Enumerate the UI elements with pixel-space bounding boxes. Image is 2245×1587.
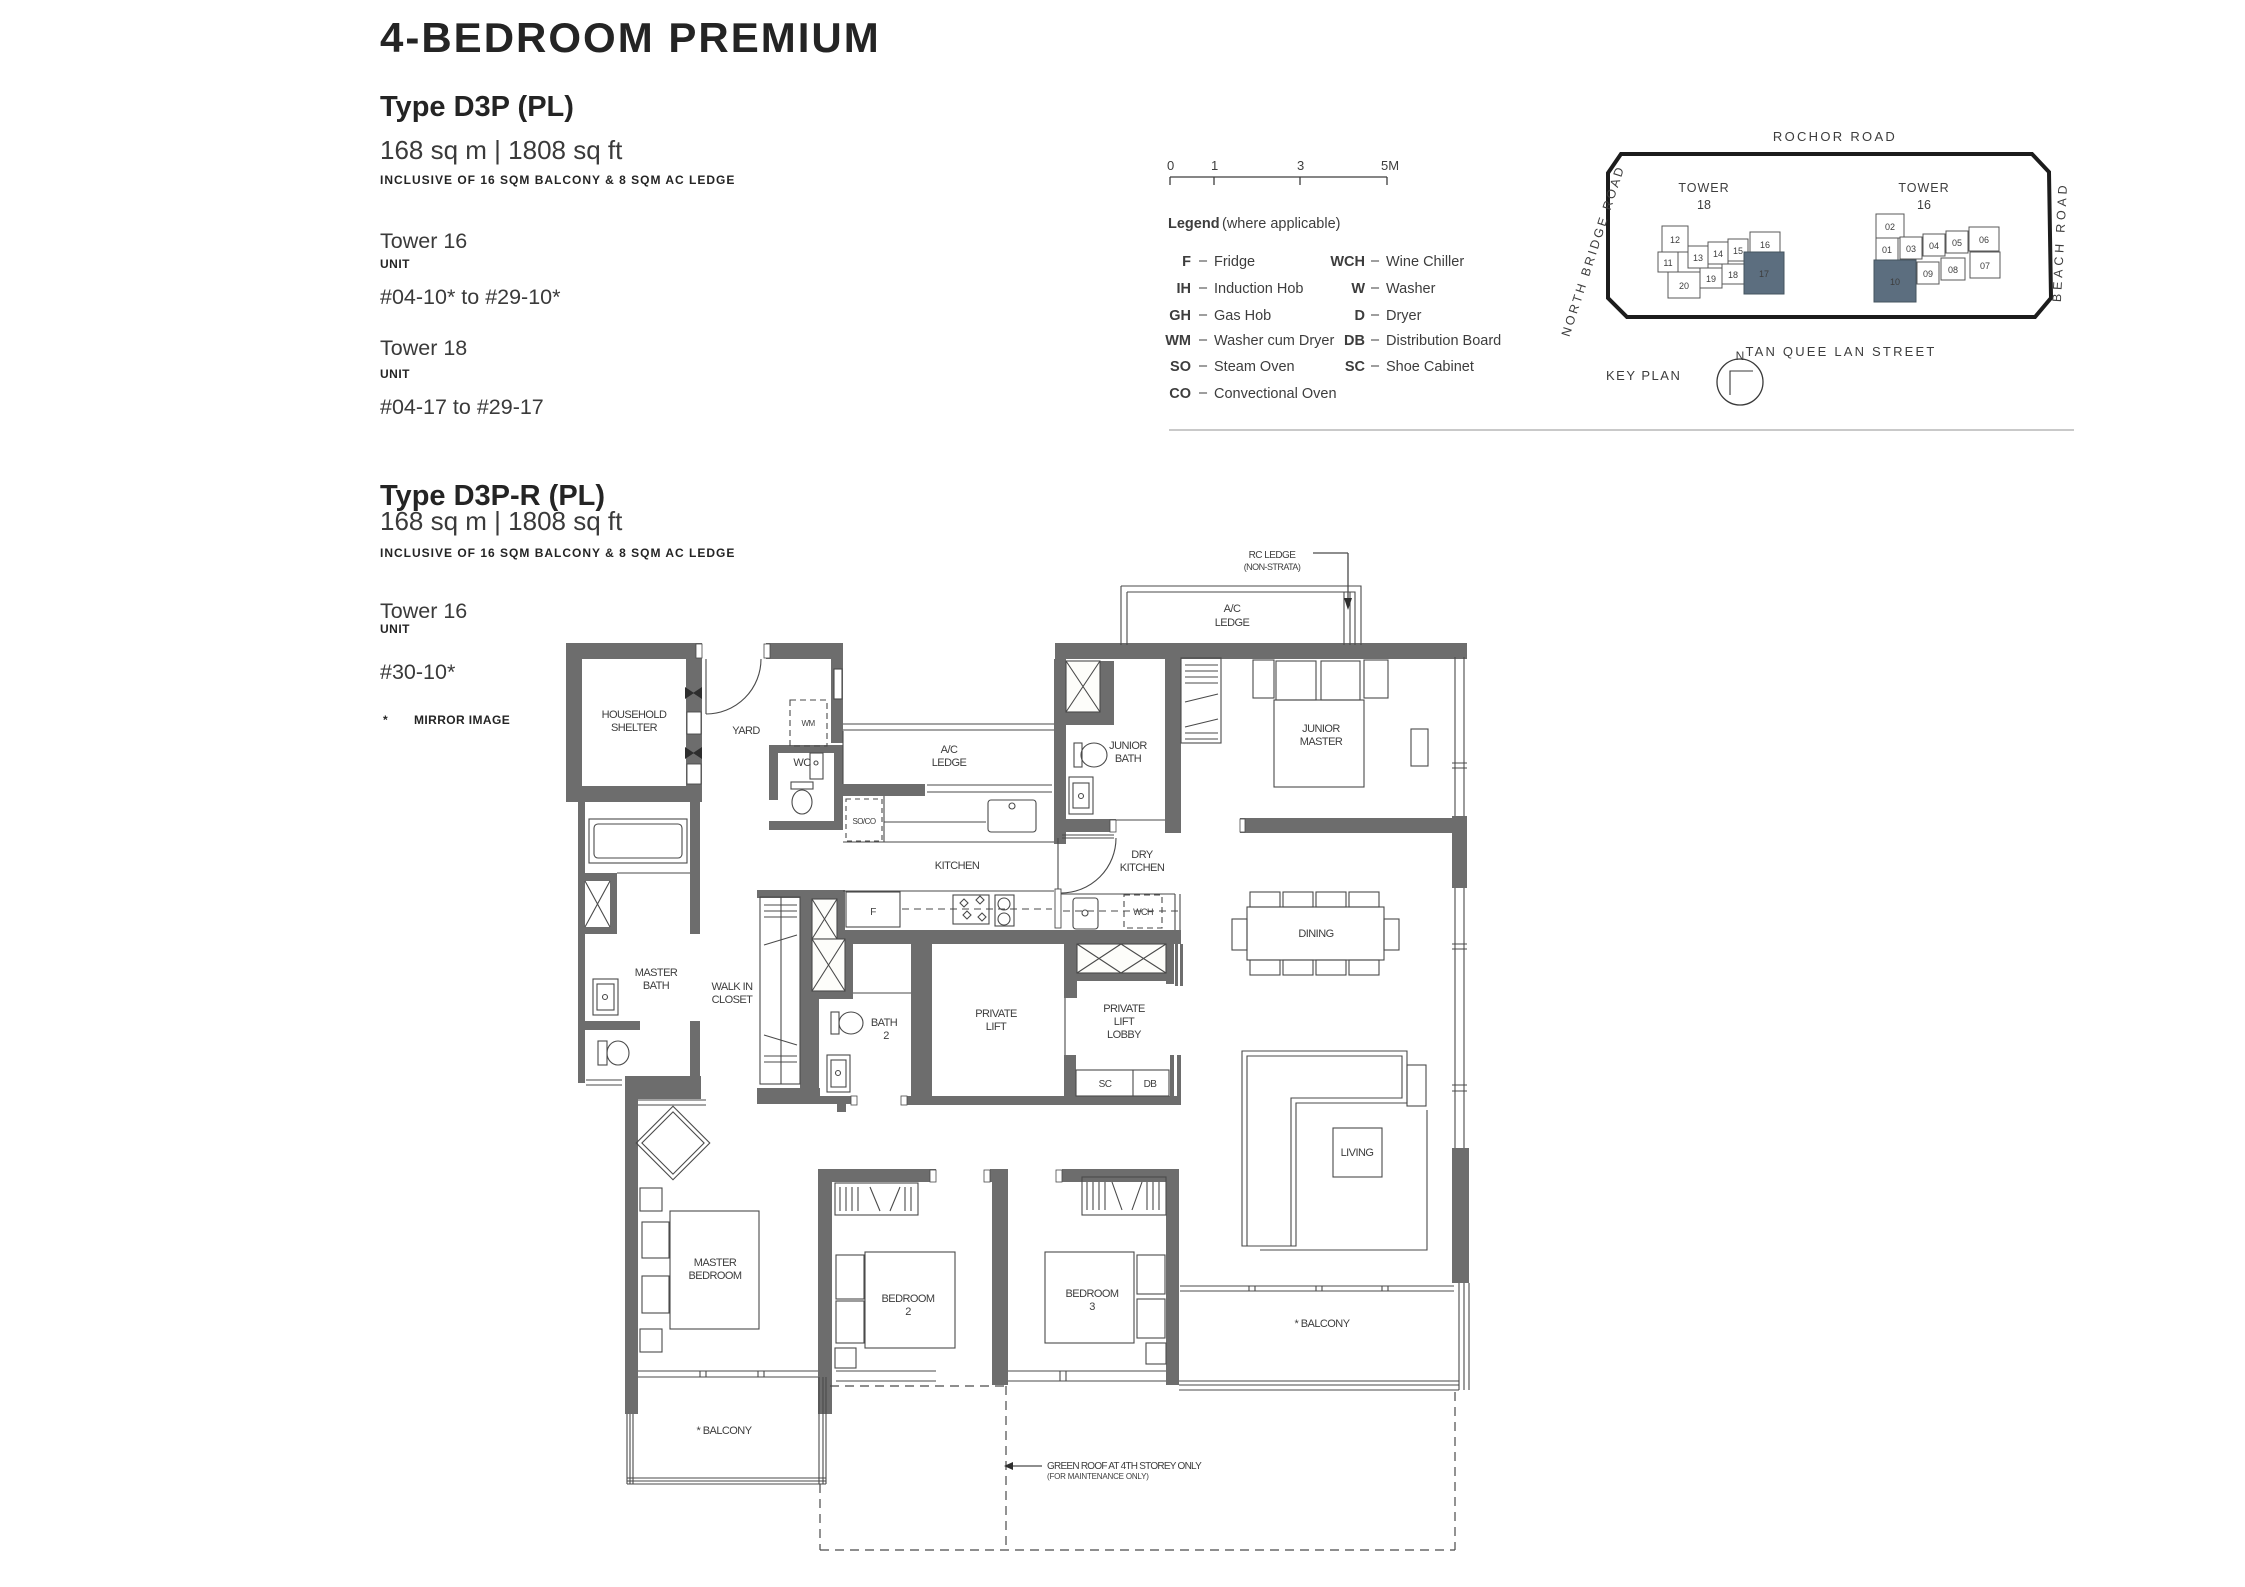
svg-text:04: 04: [1929, 241, 1939, 251]
svg-text:TAN QUEE LAN STREET: TAN QUEE LAN STREET: [1745, 344, 1936, 359]
svg-text:MASTER: MASTER: [694, 1257, 737, 1269]
svg-text:18: 18: [1697, 198, 1711, 212]
svg-text:BEDROOM: BEDROOM: [1066, 1288, 1119, 1300]
svg-text:PRIVATE: PRIVATE: [1103, 1003, 1145, 1015]
svg-text:Steam Oven: Steam Oven: [1214, 359, 1295, 375]
svg-text:DB: DB: [1144, 1079, 1158, 1090]
svg-text:BATH: BATH: [643, 980, 670, 992]
svg-text:BEDROOM: BEDROOM: [689, 1270, 742, 1282]
svg-text:168 sq m | 1808 sq ft: 168 sq m | 1808 sq ft: [380, 135, 623, 165]
svg-text:(FOR MAINTENANCE ONLY): (FOR MAINTENANCE ONLY): [1047, 1472, 1149, 1481]
svg-text:UNIT: UNIT: [380, 367, 410, 381]
svg-text:INCLUSIVE OF 16 SQM BALCONY &: INCLUSIVE OF 16 SQM BALCONY & 8 SQM AC L…: [380, 173, 735, 187]
svg-text:#04-17 to #29-17: #04-17 to #29-17: [380, 395, 544, 419]
svg-text:PRIVATE: PRIVATE: [975, 1008, 1017, 1020]
svg-text:–: –: [1371, 253, 1380, 269]
svg-text:D: D: [1355, 308, 1365, 324]
svg-text:WCH: WCH: [1133, 907, 1153, 917]
svg-text:Washer: Washer: [1386, 281, 1436, 297]
svg-text:–: –: [1199, 253, 1208, 269]
svg-text:1: 1: [1211, 158, 1218, 173]
svg-text:WC: WC: [793, 757, 811, 769]
svg-text:DINING: DINING: [1298, 928, 1333, 940]
svg-text:17: 17: [1759, 269, 1769, 279]
svg-text:(where applicable): (where applicable): [1222, 216, 1340, 232]
svg-text:JUNIOR: JUNIOR: [1302, 723, 1340, 735]
svg-text:BATH: BATH: [1115, 753, 1142, 765]
svg-text:KITCHEN: KITCHEN: [935, 860, 980, 872]
svg-text:07: 07: [1980, 261, 1990, 271]
svg-text:–: –: [1371, 280, 1380, 296]
svg-text:(NON-STRATA): (NON-STRATA): [1244, 562, 1301, 572]
svg-text:RC LEDGE: RC LEDGE: [1249, 550, 1297, 561]
svg-text:CLOSET: CLOSET: [712, 994, 754, 1006]
svg-text:TOWER: TOWER: [1678, 181, 1729, 195]
svg-text:MASTER: MASTER: [1300, 736, 1343, 748]
svg-text:KITCHEN: KITCHEN: [1120, 862, 1165, 874]
svg-text:Dryer: Dryer: [1386, 308, 1422, 324]
svg-text:WALK IN: WALK IN: [712, 981, 754, 993]
svg-text:–: –: [1199, 332, 1208, 348]
svg-text:20: 20: [1679, 281, 1689, 291]
svg-text:ROCHOR ROAD: ROCHOR ROAD: [1773, 129, 1897, 144]
svg-text:WM: WM: [1165, 333, 1191, 349]
svg-text:19: 19: [1706, 274, 1716, 284]
svg-text:NORTH BRIDGE ROAD: NORTH BRIDGE ROAD: [1559, 163, 1628, 338]
svg-text:DRY: DRY: [1131, 849, 1154, 861]
svg-text:SC: SC: [1345, 359, 1366, 375]
svg-text:Tower 16: Tower 16: [380, 229, 467, 253]
svg-text:GH: GH: [1169, 308, 1191, 324]
svg-text:LEDGE: LEDGE: [932, 757, 967, 769]
svg-text:4-BEDROOM PREMIUM: 4-BEDROOM PREMIUM: [380, 14, 881, 61]
svg-text:YARD: YARD: [732, 725, 760, 737]
svg-text:Tower 16: Tower 16: [380, 599, 467, 623]
svg-text:IH: IH: [1177, 281, 1192, 297]
svg-text:UNIT: UNIT: [380, 622, 410, 636]
svg-text:16: 16: [1760, 240, 1770, 250]
svg-text:LIVING: LIVING: [1341, 1147, 1374, 1159]
svg-text:SO: SO: [1170, 359, 1191, 375]
svg-text:LEDGE: LEDGE: [1215, 617, 1250, 629]
svg-text:–: –: [1371, 307, 1380, 323]
svg-text:JUNIOR: JUNIOR: [1109, 740, 1147, 752]
svg-text:N: N: [1736, 349, 1745, 363]
svg-text:14: 14: [1713, 249, 1723, 259]
svg-text:#04-10* to #29-10*: #04-10* to #29-10*: [380, 285, 561, 309]
svg-text:A/C: A/C: [1224, 603, 1241, 615]
svg-text:Legend: Legend: [1168, 216, 1220, 232]
svg-text:–: –: [1371, 358, 1380, 374]
svg-text:06: 06: [1979, 235, 1989, 245]
svg-text:3: 3: [1297, 158, 1304, 173]
svg-text:–: –: [1371, 332, 1380, 348]
svg-text:* BALCONY: * BALCONY: [697, 1425, 753, 1437]
svg-text:Type D3P (PL): Type D3P (PL): [380, 91, 574, 123]
svg-text:LOBBY: LOBBY: [1107, 1029, 1142, 1041]
svg-text:Induction Hob: Induction Hob: [1214, 281, 1303, 297]
svg-text:Fridge: Fridge: [1214, 254, 1255, 270]
svg-text:WCH: WCH: [1330, 254, 1365, 270]
svg-text:WM: WM: [801, 719, 815, 728]
svg-text:15: 15: [1733, 246, 1743, 256]
svg-text:SO/CO: SO/CO: [852, 817, 875, 826]
svg-text:CO: CO: [1169, 386, 1191, 402]
svg-text:2: 2: [905, 1306, 911, 1318]
svg-text:*: *: [383, 713, 388, 727]
svg-text:HOUSEHOLD: HOUSEHOLD: [602, 709, 667, 721]
svg-text:02: 02: [1885, 222, 1895, 232]
svg-text:09: 09: [1923, 269, 1933, 279]
svg-text:–: –: [1199, 358, 1208, 374]
svg-text:F: F: [870, 907, 876, 918]
svg-text:–: –: [1199, 280, 1208, 296]
svg-text:2: 2: [883, 1030, 889, 1042]
svg-text:MASTER: MASTER: [635, 967, 678, 979]
svg-text:BATH: BATH: [871, 1017, 898, 1029]
svg-text:03: 03: [1906, 244, 1916, 254]
svg-text:08: 08: [1948, 265, 1958, 275]
svg-text:BEDROOM: BEDROOM: [882, 1293, 935, 1305]
svg-text:01: 01: [1882, 245, 1892, 255]
svg-text:18: 18: [1728, 270, 1738, 280]
svg-text:* BALCONY: * BALCONY: [1295, 1318, 1351, 1330]
svg-text:UNIT: UNIT: [380, 257, 410, 271]
svg-text:BEACH ROAD: BEACH ROAD: [2050, 181, 2070, 302]
svg-text:3: 3: [1089, 1301, 1095, 1313]
svg-text:KEY PLAN: KEY PLAN: [1606, 368, 1681, 383]
svg-text:Washer cum Dryer: Washer cum Dryer: [1214, 333, 1334, 349]
svg-text:MIRROR IMAGE: MIRROR IMAGE: [414, 713, 510, 727]
svg-text:DB: DB: [1344, 333, 1365, 349]
svg-text:A/C: A/C: [941, 744, 958, 756]
svg-text:Wine Chiller: Wine Chiller: [1386, 254, 1464, 270]
svg-text:Gas Hob: Gas Hob: [1214, 308, 1271, 324]
svg-text:–: –: [1199, 385, 1208, 401]
svg-text:INCLUSIVE OF 16 SQM BALCONY &: INCLUSIVE OF 16 SQM BALCONY & 8 SQM AC L…: [380, 546, 735, 560]
svg-text:16: 16: [1917, 198, 1931, 212]
svg-text:Distribution Board: Distribution Board: [1386, 333, 1501, 349]
svg-text:11: 11: [1663, 258, 1672, 268]
svg-text:12: 12: [1670, 235, 1680, 245]
svg-text:Tower 18: Tower 18: [380, 336, 467, 360]
svg-text:13: 13: [1693, 253, 1703, 263]
svg-text:168 sq m | 1808 sq ft: 168 sq m | 1808 sq ft: [380, 506, 623, 536]
svg-text:0: 0: [1167, 158, 1174, 173]
svg-text:5M: 5M: [1381, 158, 1399, 173]
svg-text:Shoe Cabinet: Shoe Cabinet: [1386, 359, 1474, 375]
svg-text:F: F: [1182, 254, 1191, 270]
svg-text:GREEN ROOF AT 4TH STOREY ONLY: GREEN ROOF AT 4TH STOREY ONLY: [1047, 1461, 1202, 1472]
svg-text:LIFT: LIFT: [986, 1021, 1007, 1033]
svg-text:SHELTER: SHELTER: [611, 722, 658, 734]
svg-text:10: 10: [1890, 277, 1900, 287]
svg-text:TOWER: TOWER: [1898, 181, 1949, 195]
svg-text:Convectional Oven: Convectional Oven: [1214, 386, 1337, 402]
svg-text:W: W: [1351, 281, 1365, 297]
svg-text:#30-10*: #30-10*: [380, 660, 456, 684]
svg-text:SC: SC: [1099, 1079, 1112, 1090]
svg-text:–: –: [1199, 307, 1208, 323]
svg-text:LIFT: LIFT: [1114, 1016, 1135, 1028]
svg-text:05: 05: [1952, 238, 1962, 248]
